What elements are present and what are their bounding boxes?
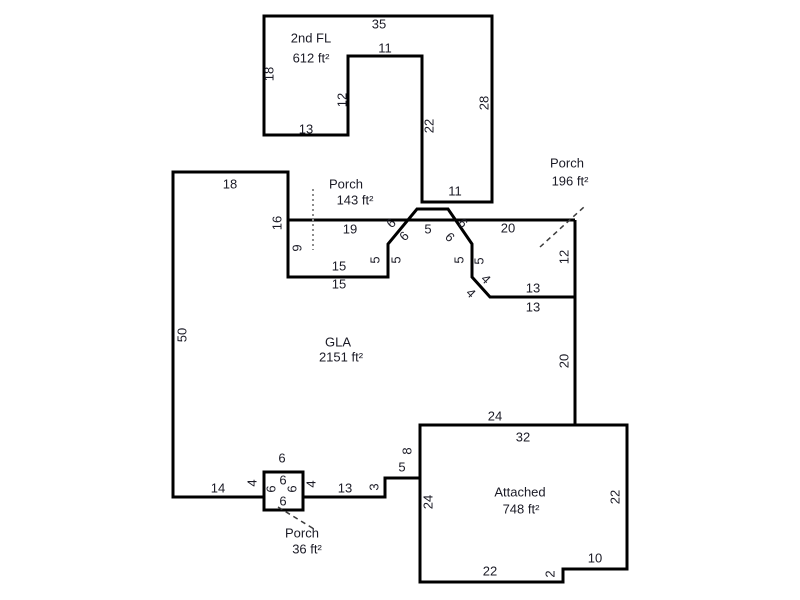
dim-gla-ledge-outer: 13 (526, 281, 540, 296)
dim-bay-side-right-inner: 5 (472, 257, 487, 264)
dim-attached-notch-side: 2 (543, 570, 558, 577)
dim-porch-main-bottom-outer: 15 (332, 277, 346, 292)
gla-area: 2151 ft² (319, 350, 364, 365)
dim-gla-step-side: 8 (400, 447, 415, 454)
attached-area: 748 ft² (503, 502, 541, 517)
porch-main-area: 143 ft² (337, 193, 375, 208)
dim-bay-side-right-outer: 5 (452, 256, 467, 263)
dim-gla-step-up: 3 (367, 483, 382, 490)
entry-porch-area: 36 ft² (292, 542, 322, 557)
floor-plan-sketch: 35 11 18 12 13 22 28 11 2nd FL 612 ft² 1… (0, 0, 800, 600)
dim-entry-porch-inner-top: 6 (279, 473, 286, 488)
dim-2ndfl-top: 35 (372, 17, 386, 32)
dim-gla-left: 50 (175, 328, 190, 342)
dim-porch-main-bottom-inner: 15 (332, 259, 346, 274)
dim-bay-side-left-inner: 5 (389, 256, 404, 263)
dim-attached-bottom: 22 (483, 564, 497, 579)
dim-entry-porch-inner-left: 6 (264, 485, 279, 492)
dim-2ndfl-bottom: 11 (448, 184, 462, 199)
entry-porch-name: Porch (285, 526, 319, 541)
dim-attached-left: 24 (421, 495, 436, 509)
attached-name: Attached (494, 485, 545, 500)
dim-gla-ledge-inner: 13 (526, 300, 540, 315)
dim-porch-main-top: 19 (343, 222, 357, 237)
dim-gla-top: 18 (223, 177, 237, 192)
dim-gla-step-over: 5 (398, 460, 405, 475)
dim-attached-top: 32 (516, 430, 530, 445)
porch-main-name: Porch (329, 177, 363, 192)
second-floor-area: 612 ft² (293, 51, 331, 66)
dim-entry-porch-top: 6 (278, 451, 285, 466)
porch-rear-area: 196 ft² (552, 174, 590, 189)
dim-porch-rear-top: 20 (501, 221, 515, 236)
dim-entry-porch-inner-right: 6 (285, 485, 300, 492)
dim-porch-main-left: 9 (290, 244, 305, 251)
dim-2ndfl-inner-right: 22 (422, 119, 437, 133)
second-floor-name: 2nd FL (291, 31, 331, 46)
dim-attached-notch-top: 10 (588, 551, 602, 566)
dim-gla-right: 20 (557, 354, 572, 368)
dim-2ndfl-notch-top: 11 (378, 41, 392, 56)
dim-porch-gap-right: 4 (304, 480, 319, 487)
porch-rear-leader-line (540, 207, 584, 247)
dim-porch-gap-left: 4 (245, 479, 260, 486)
dim-gla-bottom-right: 24 (488, 409, 502, 424)
gla-name: GLA (325, 335, 351, 350)
dim-entry-porch-inner-bottom: 6 (279, 494, 286, 509)
dim-2ndfl-bottom-left: 13 (299, 122, 313, 137)
dim-bay-top: 5 (424, 222, 431, 237)
dim-gla-bottom-left: 14 (211, 481, 225, 496)
dim-gla-upper-left: 16 (270, 216, 285, 230)
dim-2ndfl-right: 28 (477, 96, 492, 110)
dim-bay-diag-left-outer: 6 (383, 215, 399, 231)
porch-rear-name: Porch (550, 156, 584, 171)
dim-bay-side-left-outer: 5 (368, 256, 383, 263)
dim-2ndfl-left: 18 (262, 67, 277, 81)
dim-porch-rear-right: 12 (557, 250, 572, 264)
dim-gla-bottom-mid: 13 (338, 481, 352, 496)
dim-2ndfl-inner-left: 12 (335, 93, 350, 107)
dim-attached-right: 22 (608, 490, 623, 504)
